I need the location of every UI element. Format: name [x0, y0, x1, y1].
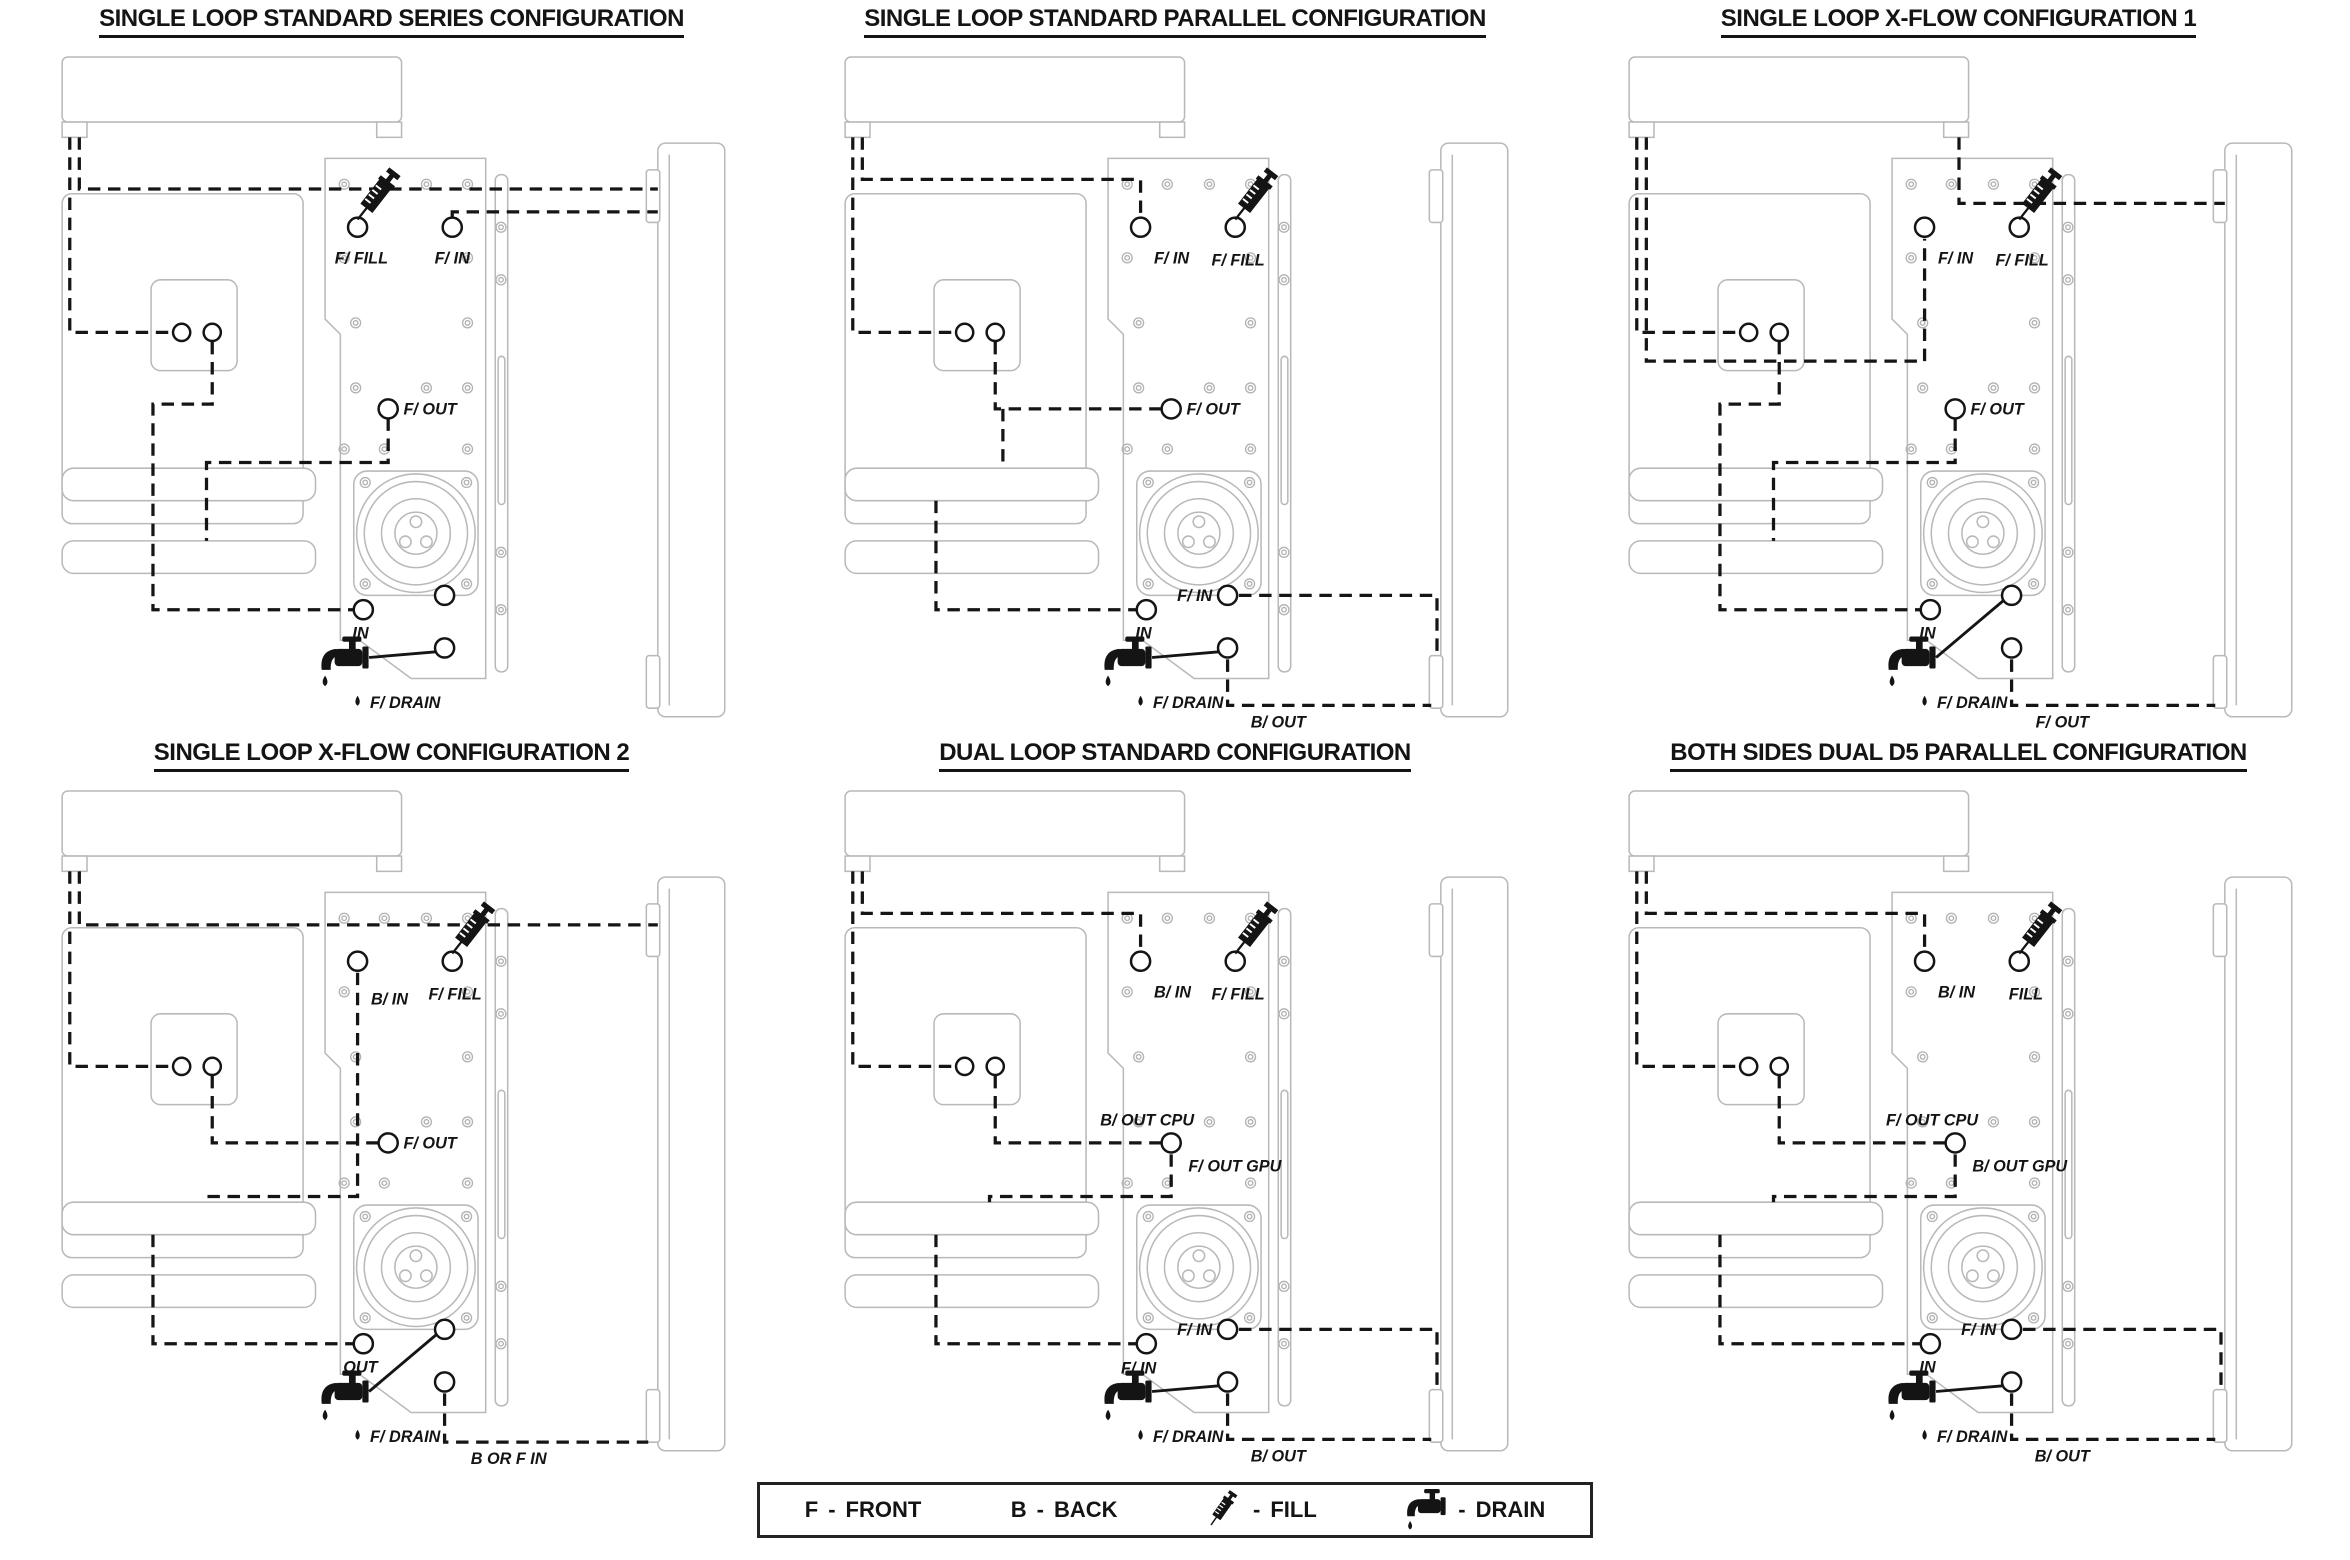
port-label-top-left: F/ FILL: [334, 250, 387, 268]
diagram-grid-row-1: SINGLE LOOP STANDARD SERIES CONFIGURATIO…: [0, 4, 2350, 738]
port-label-mid-upper: B/ OUT CPU: [1100, 1112, 1195, 1130]
legend-separator: -: [1253, 1497, 1260, 1523]
diagram-canvas-dual-d5: B/ IN FILL F/ OUT CPU B/ OUT GPU IN F/ I…: [1603, 770, 2315, 1468]
port-label-bottom-left: IN: [352, 624, 370, 642]
configuration-sheet: SINGLE LOOP STANDARD SERIES CONFIGURATIO…: [0, 0, 2350, 1538]
diagram-title: SINGLE LOOP STANDARD PARALLEL CONFIGURAT…: [783, 4, 1567, 36]
port-label-top-right: F/ FILL: [428, 985, 481, 1003]
diagram-panel-single-loop-standard-parallel: SINGLE LOOP STANDARD PARALLEL CONFIGURAT…: [783, 4, 1567, 738]
diagram-canvas-x-flow-2: B/ IN F/ FILL F/ OUT OUT B OR F IN F/ DR…: [36, 770, 748, 1468]
legend: F - FRONT B - BACK - FILL - DRAIN: [757, 1482, 1593, 1538]
legend-front-label: FRONT: [846, 1497, 922, 1523]
diagram-title: SINGLE LOOP X-FLOW CONFIGURATION 2: [0, 738, 783, 770]
legend-back-label: BACK: [1054, 1497, 1118, 1523]
port-label-mid: F/ OUT: [1970, 401, 2025, 419]
diagram-grid-row-2: SINGLE LOOP X-FLOW CONFIGURATION 2 B/ IN…: [0, 738, 2350, 1472]
port-label-drain: F/ DRAIN: [1937, 694, 2009, 712]
port-label-mid: F/ OUT: [1186, 401, 1241, 419]
port-label-top-left: F/ IN: [1937, 250, 1973, 268]
port-label-bottom-left: OUT: [343, 1358, 379, 1376]
diagram-panel-single-loop-x-flow-1: SINGLE LOOP X-FLOW CONFIGURATION 1 F/ IN…: [1567, 4, 2350, 738]
port-label-top-left: F/ IN: [1154, 250, 1190, 268]
diagram-canvas-series: F/ FILL F/ IN F/ OUT IN F/ DRAIN: [36, 36, 748, 734]
diagram-title: DUAL LOOP STANDARD CONFIGURATION: [783, 738, 1567, 770]
legend-separator: -: [828, 1497, 835, 1523]
diagram-title: SINGLE LOOP X-FLOW CONFIGURATION 1: [1567, 4, 2350, 36]
port-label-top-right: F/ FILL: [1995, 251, 2048, 269]
legend-item-fill: - FILL: [1207, 1489, 1317, 1531]
port-label-bottom-left: F/ IN: [1121, 1359, 1157, 1377]
port-label-drain: F/ DRAIN: [370, 1428, 442, 1446]
fill-syringe-icon: [1207, 1489, 1243, 1531]
legend-front-key: F: [805, 1497, 818, 1523]
port-label-drain: F/ DRAIN: [370, 694, 442, 712]
port-label-drain: F/ DRAIN: [1153, 1428, 1225, 1446]
port-label-mid-upper: F/ OUT CPU: [1886, 1112, 1979, 1130]
port-label-top-right: F/ FILL: [1211, 985, 1264, 1003]
diagram-panel-single-loop-x-flow-2: SINGLE LOOP X-FLOW CONFIGURATION 2 B/ IN…: [0, 738, 783, 1472]
port-label-top-right: F/ FILL: [1211, 251, 1264, 269]
port-label-bottom-right-upper: F/ IN: [1177, 587, 1213, 605]
legend-item-front: F - FRONT: [805, 1497, 922, 1523]
port-label-mid: F/ OUT: [403, 1135, 458, 1153]
legend-item-drain: - DRAIN: [1406, 1488, 1545, 1532]
port-label-bottom-right-upper: F/ IN: [1961, 1321, 1997, 1339]
diagram-title: BOTH SIDES DUAL D5 PARALLEL CONFIGURATIO…: [1567, 738, 2350, 770]
diagram-panel-single-loop-standard-series: SINGLE LOOP STANDARD SERIES CONFIGURATIO…: [0, 4, 783, 738]
port-label-drain: F/ DRAIN: [1937, 1428, 2009, 1446]
port-label-bottom-right-lower: B/ OUT: [1251, 1447, 1308, 1465]
port-label-bottom-left: IN: [1919, 1358, 1937, 1376]
legend-fill-label: FILL: [1270, 1497, 1316, 1523]
diagram-canvas-parallel: F/ IN F/ FILL F/ OUT IN F/ IN B/ OUT F/ …: [819, 36, 1531, 734]
port-label-top-left: B/ IN: [370, 990, 408, 1008]
port-label-bottom-right-lower: B/ OUT: [2034, 1447, 2091, 1465]
legend-separator: -: [1037, 1497, 1044, 1523]
port-label-top-right: FILL: [2008, 985, 2042, 1003]
port-label-bottom-right-lower: B OR F IN: [470, 1450, 547, 1468]
port-label-mid-lower: B/ OUT GPU: [1972, 1158, 2068, 1176]
port-label-mid: F/ OUT: [403, 401, 458, 419]
legend-drain-label: DRAIN: [1476, 1497, 1546, 1523]
port-label-top-left: B/ IN: [1154, 984, 1192, 1002]
port-label-bottom-left: IN: [1919, 624, 1937, 642]
port-label-bottom-right-lower: F/ OUT: [2035, 713, 2090, 731]
port-label-bottom-right-upper: F/ IN: [1177, 1321, 1213, 1339]
legend-back-key: B: [1011, 1497, 1027, 1523]
port-label-mid-lower: F/ OUT GPU: [1188, 1158, 1282, 1176]
port-label-top-left: B/ IN: [1937, 984, 1975, 1002]
diagram-panel-both-sides-dual-d5-parallel: BOTH SIDES DUAL D5 PARALLEL CONFIGURATIO…: [1567, 738, 2350, 1472]
diagram-canvas-dual-loop: B/ IN F/ FILL B/ OUT CPU F/ OUT GPU F/ I…: [819, 770, 1531, 1468]
port-label-top-right: F/ IN: [434, 250, 470, 268]
legend-separator: -: [1458, 1497, 1465, 1523]
legend-item-back: B - BACK: [1011, 1497, 1118, 1523]
port-label-drain: F/ DRAIN: [1153, 694, 1225, 712]
diagram-title: SINGLE LOOP STANDARD SERIES CONFIGURATIO…: [0, 4, 783, 36]
diagram-panel-dual-loop-standard: DUAL LOOP STANDARD CONFIGURATION B/ IN F…: [783, 738, 1567, 1472]
port-label-bottom-left: IN: [1135, 624, 1153, 642]
diagram-canvas-x-flow-1: F/ IN F/ FILL F/ OUT IN F/ OUT F/ DRAIN: [1603, 36, 2315, 734]
port-label-bottom-right-lower: B/ OUT: [1251, 713, 1308, 731]
drain-faucet-icon: [1406, 1488, 1448, 1532]
